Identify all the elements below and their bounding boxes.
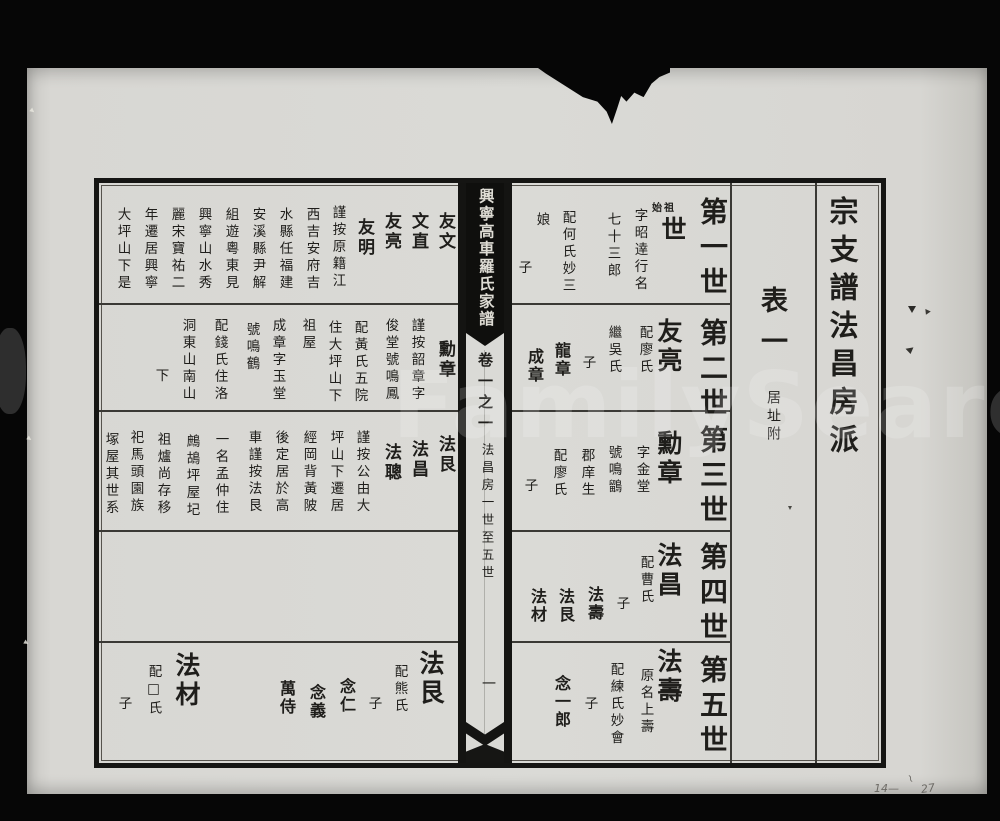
- generation-label-1: 第一世: [698, 197, 726, 302]
- son-name: 友文: [436, 212, 453, 252]
- son-name: 文直: [409, 212, 426, 252]
- note-column: 年遷居興寧: [142, 207, 156, 292]
- table-sublabel: 居址附: [766, 390, 780, 444]
- son-name: 念義: [308, 684, 324, 720]
- row-divider: [99, 303, 458, 305]
- son-name: 勳章: [436, 340, 453, 380]
- microfilm-scan: 興寧高車羅氏家譜 卷一之一 法昌房一世至五世 一 宗支譜法昌房派 表一 居址附 …: [0, 0, 1000, 821]
- son-marker: 子: [614, 596, 628, 613]
- son-name: 友亮: [382, 212, 399, 252]
- son-marker: 子: [582, 696, 596, 713]
- spouse-note: 配熊氏: [392, 664, 406, 715]
- note-column: 娘: [534, 212, 548, 229]
- note-column: 車謹按法艮: [246, 430, 260, 515]
- note-column: 一名孟仲住: [213, 432, 227, 517]
- folio-number: 一: [481, 676, 495, 690]
- section-title: 宗支譜法昌房派: [827, 196, 856, 462]
- note-column: 謹按韶章字: [409, 318, 423, 403]
- son-marker: 子: [116, 696, 130, 713]
- spine-bar-right: [504, 183, 512, 763]
- volume-label: 卷一之一: [477, 352, 492, 436]
- son-marker: 子: [522, 478, 536, 495]
- note-column: 號鳴鶴: [244, 322, 258, 373]
- row-divider: [99, 410, 458, 412]
- note-column: 祖屋: [300, 318, 314, 352]
- note-column: 經岡背黃陂: [301, 430, 315, 515]
- note-column: 郡庠生: [579, 448, 593, 499]
- son-name: 龍章: [553, 342, 569, 378]
- note-column: 洞東山南山: [180, 318, 194, 403]
- person-name: 法壽: [656, 648, 681, 706]
- son-name: 法艮: [557, 588, 573, 624]
- note-column: 坪山下遷居: [328, 430, 342, 515]
- note-column: 號鳴鶹: [606, 445, 620, 496]
- note-column: 俊堂號鳴鳳: [383, 318, 397, 403]
- note-column: 成章字玉堂: [270, 318, 284, 403]
- note-column: 下: [153, 368, 167, 385]
- generation-label-4: 第四世: [698, 542, 726, 647]
- pencil-annotation: 27: [920, 781, 936, 796]
- pencil-annotation: 14—: [874, 782, 899, 795]
- son-marker: 子: [516, 260, 530, 277]
- note-column: 配廖氏: [551, 448, 565, 499]
- spouse-note: 配□氏: [146, 664, 160, 718]
- note-column: 住大坪山下: [326, 320, 340, 405]
- generation-label-2: 第二世: [698, 318, 726, 423]
- son-marker: 子: [366, 696, 380, 713]
- ink-speck: [788, 506, 792, 510]
- note-column: 字昭逹行名: [632, 208, 646, 293]
- person-name: 友亮: [656, 318, 681, 376]
- son-name: 法昌: [409, 440, 426, 480]
- son-name: 法材: [529, 588, 545, 624]
- son-name: 念一郎: [553, 675, 569, 729]
- note-column: 配練氏妙會: [608, 662, 622, 747]
- note-column: 字金堂: [634, 445, 648, 496]
- ancestor-marker: 始祖: [652, 199, 676, 214]
- note-column: 原名上壽: [638, 668, 652, 736]
- row-divider: [99, 641, 458, 643]
- son-name: 萬侍: [278, 680, 294, 716]
- note-column: 謹按公由大: [354, 430, 368, 515]
- note-column: 七十三郎: [605, 212, 619, 280]
- person-name: 勳章: [656, 430, 681, 488]
- note-column: 配錢氏住洛: [212, 318, 226, 403]
- son-name: 友明: [355, 218, 372, 258]
- note-column: 安溪縣尹解: [250, 207, 264, 292]
- note-column: 興寧山水秀: [196, 207, 210, 292]
- column-divider: [815, 183, 817, 763]
- note-column: 祖爐尚存移: [155, 432, 169, 517]
- note-column: 大坪山下是: [115, 207, 129, 292]
- son-name: 念仁: [338, 678, 354, 714]
- note-column: 謹按原籍江: [330, 205, 344, 290]
- note-column: 配曹氏: [638, 555, 652, 606]
- row-divider: [512, 303, 730, 305]
- generation-label-3: 第三世: [698, 425, 726, 530]
- row-divider: [512, 530, 730, 532]
- son-name: 法聰: [382, 443, 399, 483]
- book-title: 興寧高車羅氏家譜: [477, 188, 493, 328]
- note-column: 繼吳氏: [606, 325, 620, 376]
- table-label: 表一: [758, 286, 785, 368]
- spine-title-block: 興寧高車羅氏家譜: [466, 183, 504, 333]
- section-range: 法昌房一世至五世: [480, 443, 493, 583]
- generation-label-5: 第五世: [698, 655, 726, 760]
- person-name: 法昌: [656, 542, 681, 600]
- note-column: 配廖氏: [637, 325, 651, 376]
- note-column: 水縣任福建: [277, 207, 291, 292]
- note-column: 配何氏妙三: [560, 210, 574, 295]
- note-column: 配黃氏五院: [352, 320, 366, 405]
- son-name: 法壽: [586, 586, 602, 622]
- note-column: 塚屋其世系: [103, 432, 117, 517]
- note-column: 麗宋寶祐二: [169, 207, 183, 292]
- person-name: 法材: [174, 652, 199, 710]
- son-name: 成章: [526, 348, 542, 384]
- son-marker: 子: [580, 355, 594, 372]
- spine-bar-left: [458, 183, 466, 763]
- note-column: 鷓鴣坪屋圮: [184, 434, 198, 519]
- person-name: 法艮: [418, 650, 443, 708]
- note-column: 後定居於高: [273, 430, 287, 515]
- watermark-fragment: [0, 328, 26, 414]
- note-column: 組遊粵東見: [223, 207, 237, 292]
- row-divider: [99, 530, 458, 532]
- ink-speck: [908, 306, 916, 313]
- person-name: 世: [660, 216, 685, 245]
- son-name: 法艮: [436, 435, 453, 475]
- note-column: 祀馬頭園族: [128, 430, 142, 515]
- note-column: 西吉安府吉: [304, 207, 318, 292]
- column-divider: [730, 183, 732, 763]
